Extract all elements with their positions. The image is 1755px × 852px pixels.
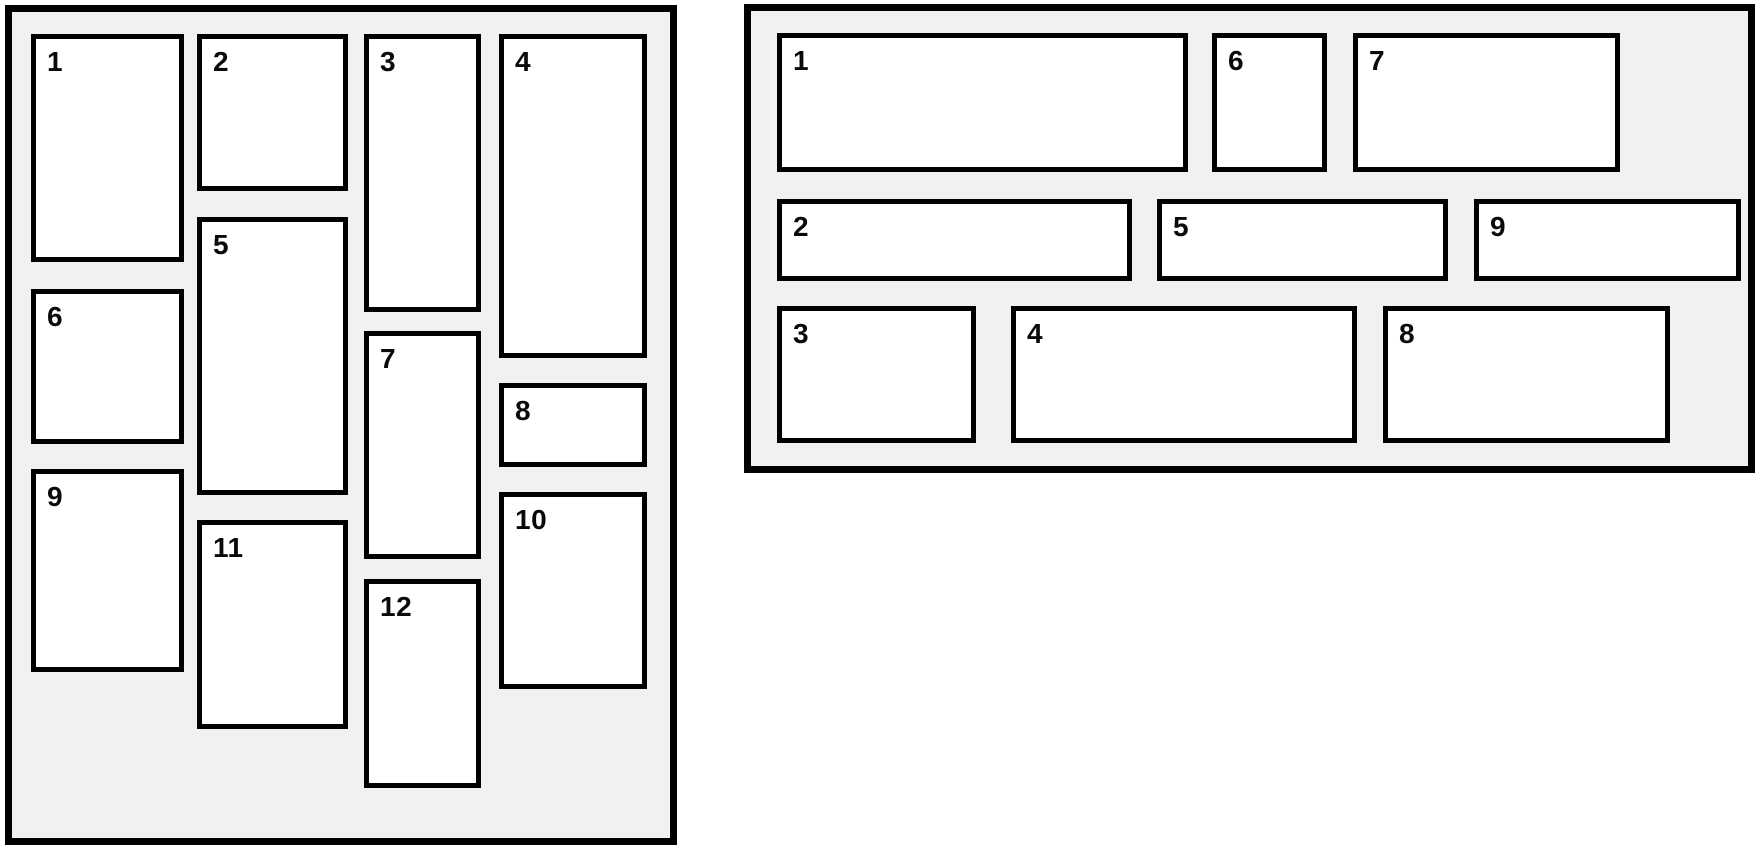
masonry-item: 11 — [197, 520, 348, 729]
masonry-item: 9 — [1474, 199, 1741, 281]
masonry-item: 2 — [197, 34, 348, 191]
masonry-item-label: 10 — [504, 497, 642, 543]
masonry-item-label: 2 — [782, 204, 1127, 250]
masonry-item: 10 — [499, 492, 647, 689]
masonry-item: 9 — [31, 469, 184, 672]
column-masonry-panel: 123456789101112 — [5, 5, 677, 845]
masonry-item-label: 5 — [202, 222, 343, 268]
masonry-item: 8 — [499, 383, 647, 467]
masonry-item-label: 8 — [1388, 311, 1665, 357]
masonry-item: 7 — [1353, 33, 1620, 172]
masonry-item-label: 11 — [202, 525, 343, 571]
masonry-item: 4 — [1011, 306, 1357, 443]
masonry-item-label: 2 — [202, 39, 343, 85]
masonry-item-label: 12 — [369, 584, 476, 630]
masonry-item-label: 1 — [782, 38, 1183, 84]
masonry-item-label: 7 — [369, 336, 476, 382]
masonry-item: 5 — [1157, 199, 1448, 281]
masonry-item: 2 — [777, 199, 1132, 281]
masonry-item-label: 8 — [504, 388, 642, 434]
masonry-item-label: 4 — [1016, 311, 1352, 357]
masonry-item-label: 5 — [1162, 204, 1443, 250]
masonry-comparison-diagram: 123456789101112 123456789 — [0, 0, 1755, 852]
masonry-item-label: 6 — [1217, 38, 1322, 84]
masonry-item: 12 — [364, 579, 481, 788]
masonry-item: 1 — [31, 34, 184, 262]
row-masonry-panel: 123456789 — [744, 4, 1755, 473]
masonry-item: 6 — [1212, 33, 1327, 172]
masonry-item-label: 7 — [1358, 38, 1615, 84]
masonry-item-label: 1 — [36, 39, 179, 85]
masonry-item-label: 3 — [782, 311, 971, 357]
masonry-item-label: 6 — [36, 294, 179, 340]
masonry-item-label: 9 — [1479, 204, 1736, 250]
masonry-item: 4 — [499, 34, 647, 358]
masonry-item: 3 — [777, 306, 976, 443]
masonry-item: 3 — [364, 34, 481, 312]
masonry-item: 7 — [364, 331, 481, 559]
masonry-item: 8 — [1383, 306, 1670, 443]
masonry-item: 6 — [31, 289, 184, 444]
masonry-item-label: 4 — [504, 39, 642, 85]
masonry-item: 1 — [777, 33, 1188, 172]
masonry-item-label: 9 — [36, 474, 179, 520]
masonry-item: 5 — [197, 217, 348, 495]
masonry-item-label: 3 — [369, 39, 476, 85]
